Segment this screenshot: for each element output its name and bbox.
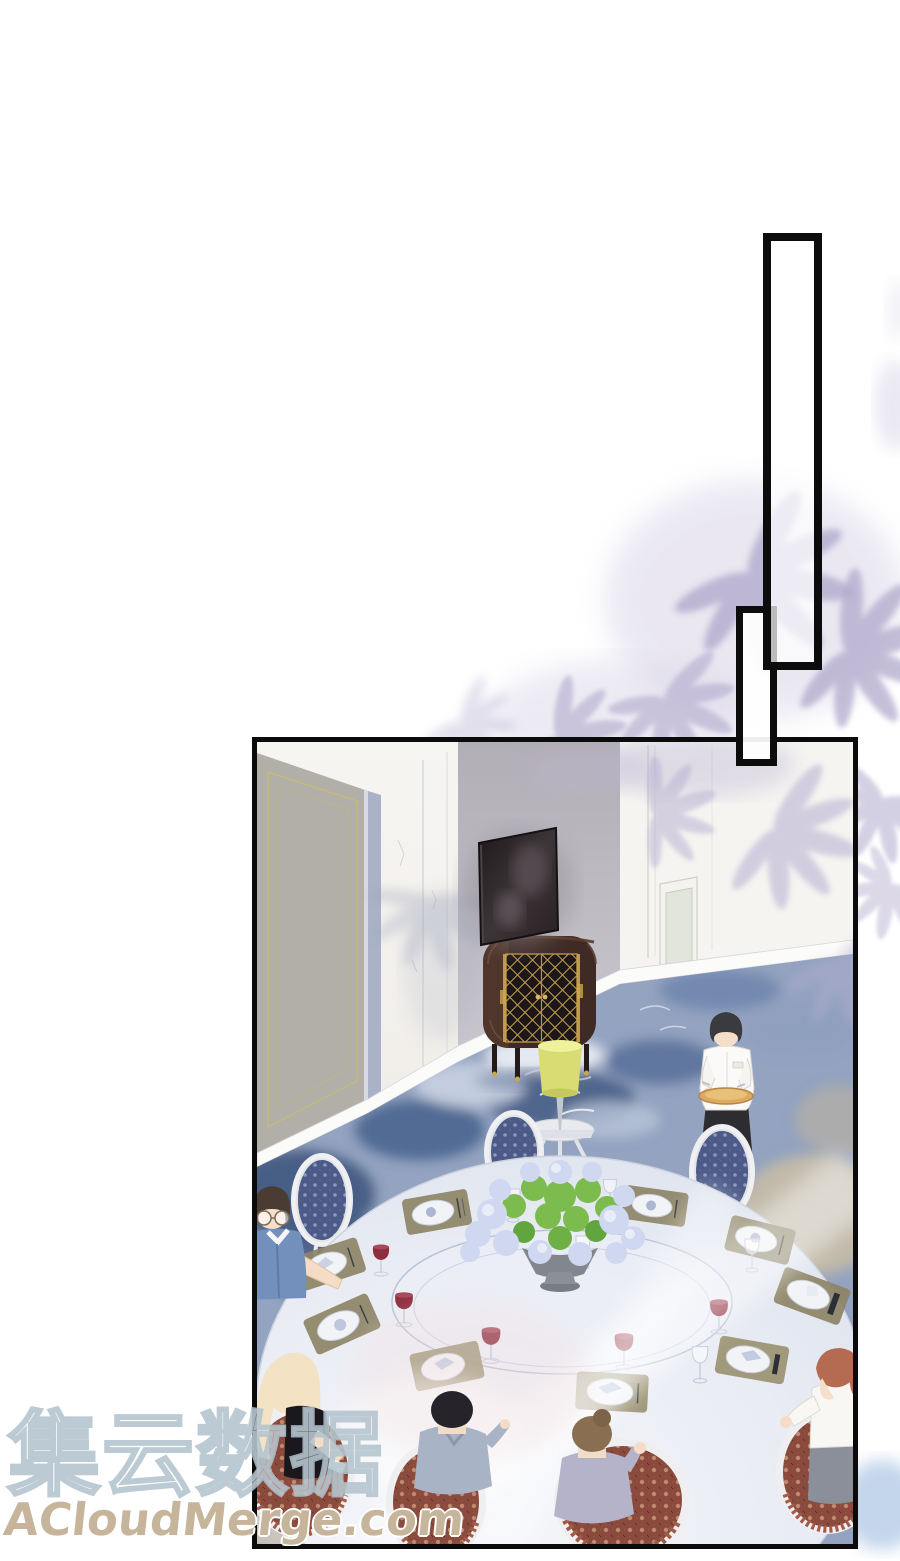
comic-panel: [252, 737, 858, 1549]
panel-scene: [257, 742, 853, 1544]
auburn-shirt: [810, 1382, 853, 1448]
waiter-name-tag: [733, 1062, 743, 1068]
auburn-skirt: [808, 1442, 853, 1504]
door-frosted-pane: [666, 888, 692, 968]
comic-page: 集云数据 ACloudMerge.com: [0, 0, 900, 1561]
tv: [463, 828, 573, 950]
faint-shadow-right-edge: [875, 360, 900, 450]
cabinet-doors: [506, 954, 577, 1042]
hair-bun: [593, 1409, 611, 1427]
speech-bubble-tall: [763, 233, 822, 670]
gray-man-jacket: [414, 1425, 492, 1494]
gray-man-hair: [431, 1391, 473, 1429]
fabric-wall-panel: [257, 753, 381, 1153]
faint-shadow-right-edge-2: [886, 280, 900, 340]
